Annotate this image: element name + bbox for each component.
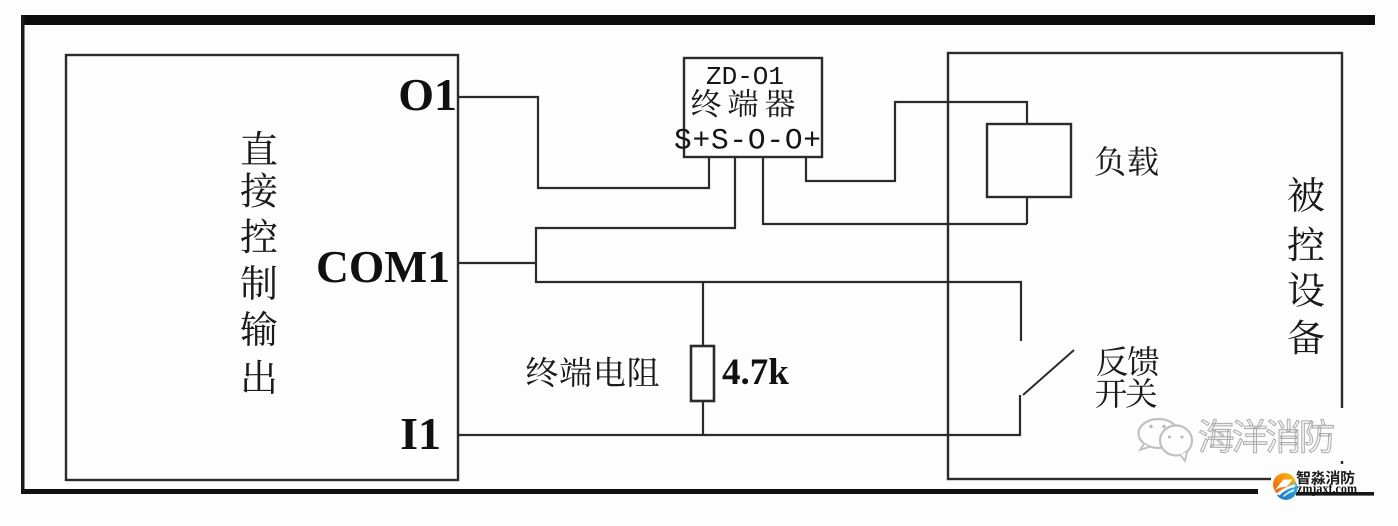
svg-text:COM1: COM1 <box>316 241 450 292</box>
svg-text:zmjaxf.com: zmjaxf.com <box>1297 481 1358 496</box>
svg-text:4.7k: 4.7k <box>722 352 789 393</box>
svg-text:I1: I1 <box>400 408 441 459</box>
svg-text:S+S-O-O+: S+S-O-O+ <box>674 124 821 158</box>
svg-text:ZD-O1: ZD-O1 <box>706 62 784 92</box>
svg-text:O1: O1 <box>398 69 457 120</box>
